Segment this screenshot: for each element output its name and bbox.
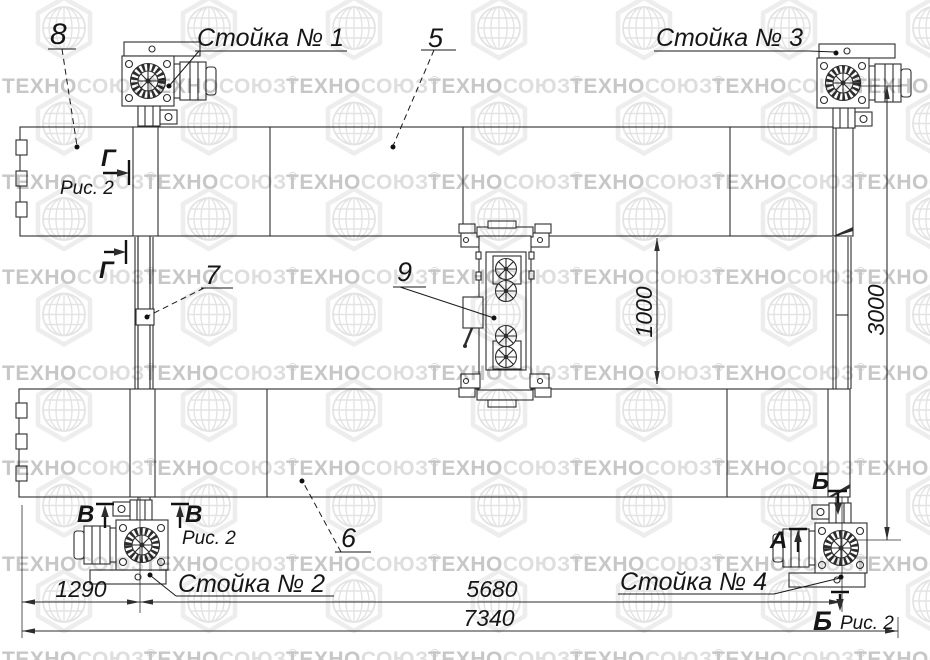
section-letter-a: А: [769, 527, 787, 554]
dim-3000: 3000: [863, 284, 889, 335]
callout-number: 9: [397, 257, 412, 287]
technical-drawing: 1290 5680 7340 1000 3000 Г: [0, 0, 930, 660]
figure-reference: Рис. 2: [60, 178, 114, 199]
post-label: Стойка № 3: [656, 24, 803, 52]
cross-beam-left-mid: [135, 237, 154, 389]
section-mark-v-right: В: [171, 501, 202, 528]
control-lever: [465, 328, 472, 345]
callout-number: 8: [50, 18, 67, 51]
section-mark-b-bottom: Б Рис. 2: [813, 592, 894, 636]
section-letter-v: В: [185, 501, 202, 528]
figure-reference: Рис. 2: [840, 613, 894, 634]
post-label: Стойка № 2: [178, 570, 325, 598]
label-post-3: Стойка № 3: [654, 24, 839, 56]
runway-top: [16, 127, 853, 236]
section-letter-gamma: Г: [99, 257, 115, 284]
center-drive-assembly: [459, 221, 551, 407]
dimension-1000: 1000: [631, 238, 660, 384]
callout-number: 5: [428, 23, 444, 53]
control-box: [463, 297, 483, 328]
section-mark-v-left: В: [77, 501, 114, 528]
dim-1290: 1290: [55, 576, 106, 602]
callout-number: 6: [341, 523, 357, 553]
runway-bottom: [16, 389, 850, 497]
dimension-3000: 3000: [855, 86, 901, 540]
label-post-2: Стойка № 2: [148, 570, 335, 598]
drawing-page: 1290 5680 7340 1000 3000 Г: [0, 0, 930, 660]
figure-reference: Рис. 2: [182, 528, 236, 549]
dim-1000: 1000: [631, 286, 657, 337]
post-label: Стойка № 1: [197, 24, 344, 52]
section-letter-b: Б: [813, 606, 832, 636]
section-letter-v: В: [77, 501, 94, 528]
section-mark-gamma-bottom: Г: [99, 240, 126, 284]
post-label: Стойка № 4: [620, 568, 767, 596]
callout-number: 7: [205, 260, 221, 290]
dim-7340: 7340: [463, 605, 514, 631]
section-letter-b: Б: [812, 468, 829, 495]
dim-5680: 5680: [466, 576, 517, 602]
section-letter-gamma: Г: [101, 145, 117, 172]
callout-7: 7: [145, 260, 234, 320]
dimension-7340: 7340: [22, 605, 898, 638]
